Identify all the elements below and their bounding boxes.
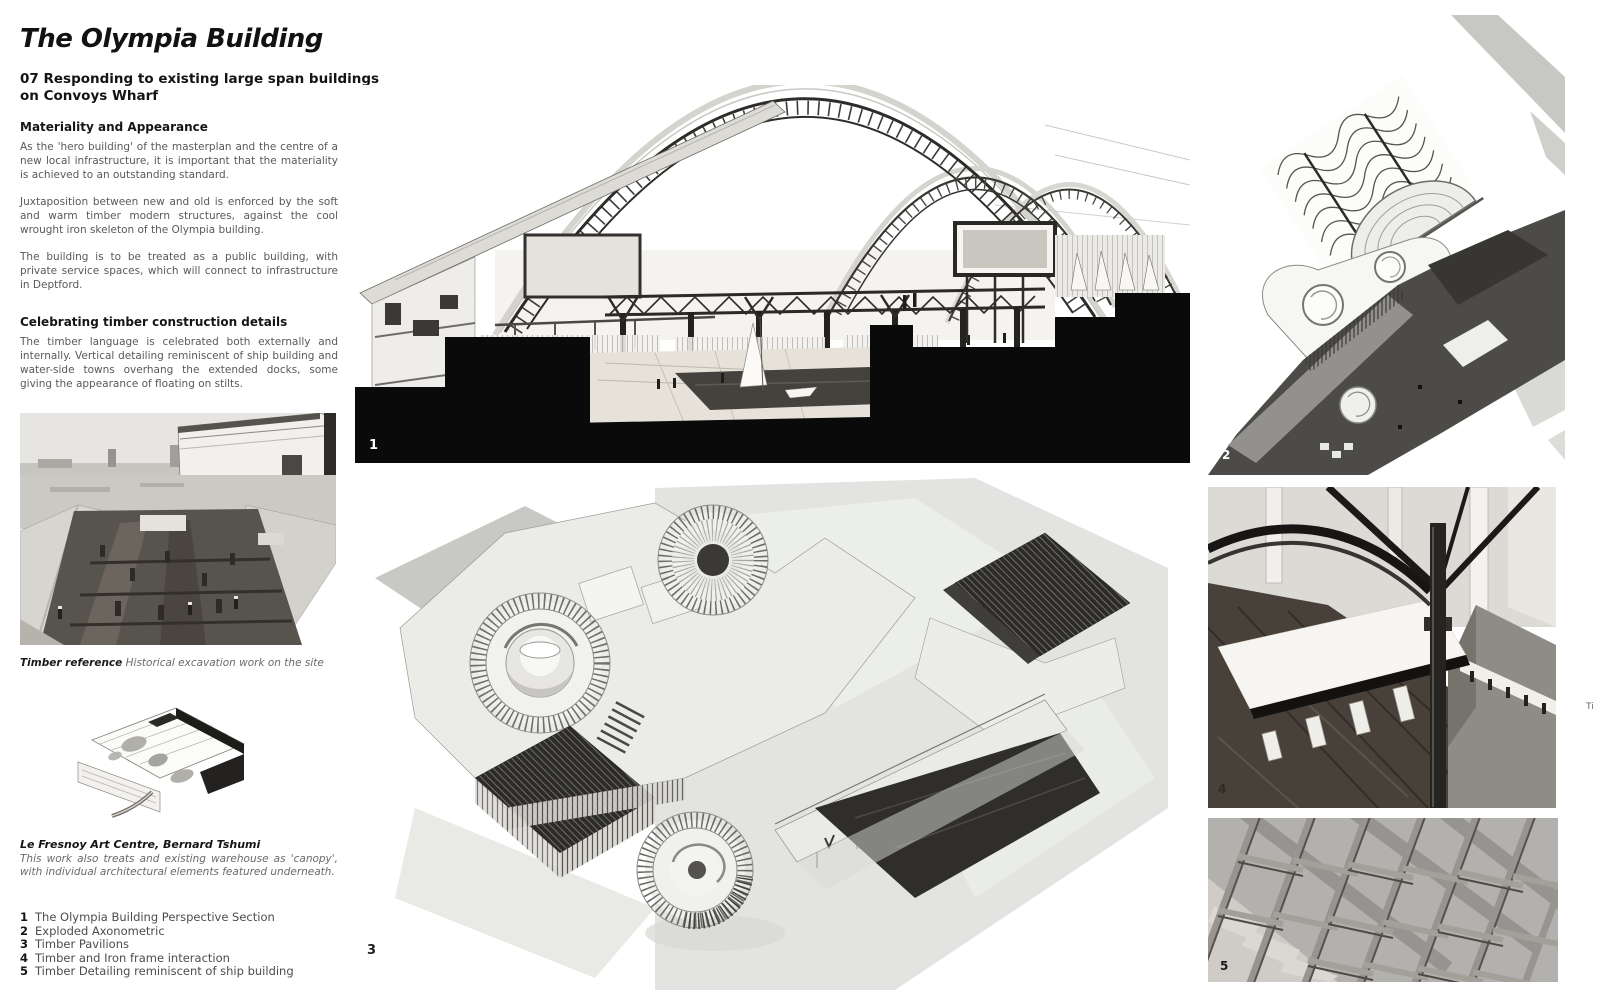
legend-label-3: Timber Pavilions [35,938,129,952]
legend-num-1: 1 [20,911,35,925]
legend-label-2: Exploded Axonometric [35,925,165,939]
figure-5-timber-detailing: 5 [1208,818,1558,982]
legend-num-2: 2 [20,925,35,939]
figure-3-timber-pavilions: 3 [355,478,1168,990]
page-title: The Olympia Building [20,24,338,54]
legend-label-1: The Olympia Building Perspective Section [35,911,275,925]
legend-label-4: Timber and Iron frame interaction [35,952,230,966]
concrete-mass [1448,605,1556,808]
fresnoy-axonometric [52,698,264,822]
legend-item-1: 1 The Olympia Building Perspective Secti… [20,911,338,925]
materiality-paragraph-1: As the 'hero building' of the masterplan… [20,140,338,182]
heading-materiality: Materiality and Appearance [20,120,338,134]
subtitle-line-1: 07 Responding to existing large span bui… [20,71,338,88]
fresnoy-caption-lead: Le Fresnoy Art Centre, Bernard Tshumi [20,838,338,851]
heading-timber-details: Celebrating timber construction details [20,315,338,329]
legend-num-4: 4 [20,952,35,966]
photo-caption-rest: Historical excavation work on the site [122,657,324,669]
materiality-paragraph-3: The building is to be treated as a publi… [20,250,338,292]
figure-4-number: 4 [1218,782,1226,796]
figure-5-number: 5 [1220,959,1228,973]
materiality-paragraph-2: Juxtaposition between new and old is enf… [20,195,338,237]
photo-caption: Timber reference Historical excavation w… [20,657,338,670]
sailboats [1055,235,1165,297]
timber-paragraph-1: The timber language is celebrated both e… [20,335,338,391]
figure-2-number: 2 [1222,448,1230,462]
legend-item-3: 3 Timber Pavilions [20,938,338,952]
figure-4-timber-iron-frame: 4 [1208,487,1556,808]
fresnoy-caption: Le Fresnoy Art Centre, Bernard Tshumi Th… [20,838,338,879]
fresnoy-caption-rest: This work also treats and existing wareh… [20,853,338,879]
legend-num-5: 5 [20,965,35,979]
cropped-caption-fragment: Ti [1586,702,1594,712]
figure-legend: 1 The Olympia Building Perspective Secti… [20,911,338,979]
legend-item-2: 2 Exploded Axonometric [20,925,338,939]
legend-label-5: Timber Detailing reminiscent of ship bui… [35,965,294,979]
legend-item-4: 4 Timber and Iron frame interaction [20,952,338,966]
legend-num-3: 3 [20,938,35,952]
excavation-photo [20,413,336,645]
subtitle-line-2: on Convoys Wharf [20,88,338,105]
text-column: The Olympia Building 07 Responding to ex… [20,0,338,979]
figure-2-exploded-axonometric: 2 [1208,15,1565,475]
figure-3-number: 3 [367,943,376,958]
portfolio-board: The Olympia Building 07 Responding to ex… [0,0,1600,1001]
context-band [1451,15,1565,133]
photo-caption-lead: Timber reference [20,657,122,669]
figure-1-perspective-section: 1 [355,85,1190,463]
page-subtitle: 07 Responding to existing large span bui… [20,71,338,105]
figure-1-number: 1 [369,438,378,453]
legend-item-5: 5 Timber Detailing reminiscent of ship b… [20,965,338,979]
